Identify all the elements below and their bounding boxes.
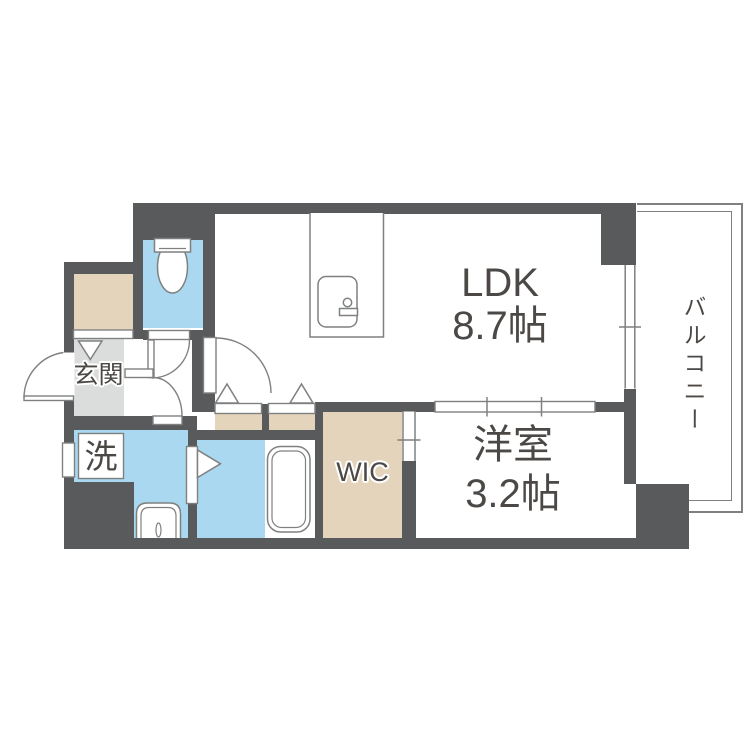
wall bbox=[188, 430, 197, 538]
wall bbox=[133, 239, 143, 339]
wall bbox=[601, 203, 636, 265]
kitchen-stove-handle-icon bbox=[340, 309, 358, 316]
wall bbox=[153, 425, 182, 431]
wall bbox=[402, 461, 416, 538]
closet-door-triangle-left-icon bbox=[216, 384, 239, 403]
shoe-cabinet bbox=[74, 274, 134, 331]
toilet-door-leaf bbox=[148, 340, 154, 378]
toilet-door-swing-arc bbox=[152, 340, 190, 378]
hall-closet-left bbox=[215, 414, 262, 431]
wall bbox=[203, 239, 216, 340]
closet-folding-door-left bbox=[215, 404, 262, 414]
entrance-door-swing-arc bbox=[24, 353, 64, 399]
wall bbox=[133, 203, 636, 214]
wall bbox=[262, 404, 269, 431]
kitchen-stove-knob-icon bbox=[343, 298, 351, 306]
bathtub-icon bbox=[268, 447, 311, 533]
bathroom-floor bbox=[197, 440, 265, 538]
ldk-name: LDK bbox=[425, 262, 575, 305]
kitchen-counter-icon bbox=[310, 213, 384, 337]
washroom-door-opening bbox=[153, 416, 182, 425]
laundry-label: 洗 bbox=[79, 439, 124, 475]
wic-label: WIC bbox=[323, 458, 402, 487]
entrance-label: 玄関 bbox=[74, 362, 124, 389]
wall bbox=[192, 393, 215, 412]
wall bbox=[133, 213, 215, 240]
wall bbox=[74, 416, 154, 430]
wall bbox=[315, 402, 624, 412]
toilet-door-opening bbox=[149, 331, 190, 340]
kitchen-stove-icon bbox=[318, 277, 357, 328]
ldk-door-swing-arc bbox=[216, 338, 271, 393]
toilet-room-floor bbox=[143, 239, 203, 328]
washroom-door-leaf bbox=[125, 369, 153, 378]
floor-plan: LDK 8.7帖 洋室 3.2帖 WIC 玄関 洗 バルコニー bbox=[0, 0, 750, 750]
ldk-size: 8.7帖 bbox=[425, 305, 575, 348]
wall bbox=[64, 538, 689, 549]
wall bbox=[64, 262, 144, 274]
balcony-label: バルコニー bbox=[677, 285, 705, 445]
western-room-label: 洋室 3.2帖 bbox=[438, 421, 588, 519]
ldk-door-leaf bbox=[204, 338, 217, 394]
wall bbox=[192, 337, 204, 393]
hall-closet-right bbox=[269, 414, 316, 431]
washroom-door-swing-arc bbox=[153, 378, 182, 417]
wall bbox=[636, 484, 689, 549]
wall bbox=[624, 389, 636, 484]
balcony-sliding-window-opening bbox=[624, 265, 636, 389]
wall bbox=[143, 330, 149, 341]
wall bbox=[188, 430, 323, 440]
shoe-cabinet-face bbox=[74, 330, 134, 339]
ldk-label: LDK 8.7帖 bbox=[425, 262, 575, 348]
western-room-size: 3.2帖 bbox=[438, 470, 588, 519]
closet-folding-door-right bbox=[269, 404, 316, 414]
bathtub-inner-line bbox=[272, 451, 306, 528]
wic-doorway-opening bbox=[402, 412, 416, 462]
western-room-name: 洋室 bbox=[438, 421, 588, 470]
closet-door-triangle-right-icon bbox=[290, 384, 313, 403]
wall bbox=[182, 416, 197, 430]
